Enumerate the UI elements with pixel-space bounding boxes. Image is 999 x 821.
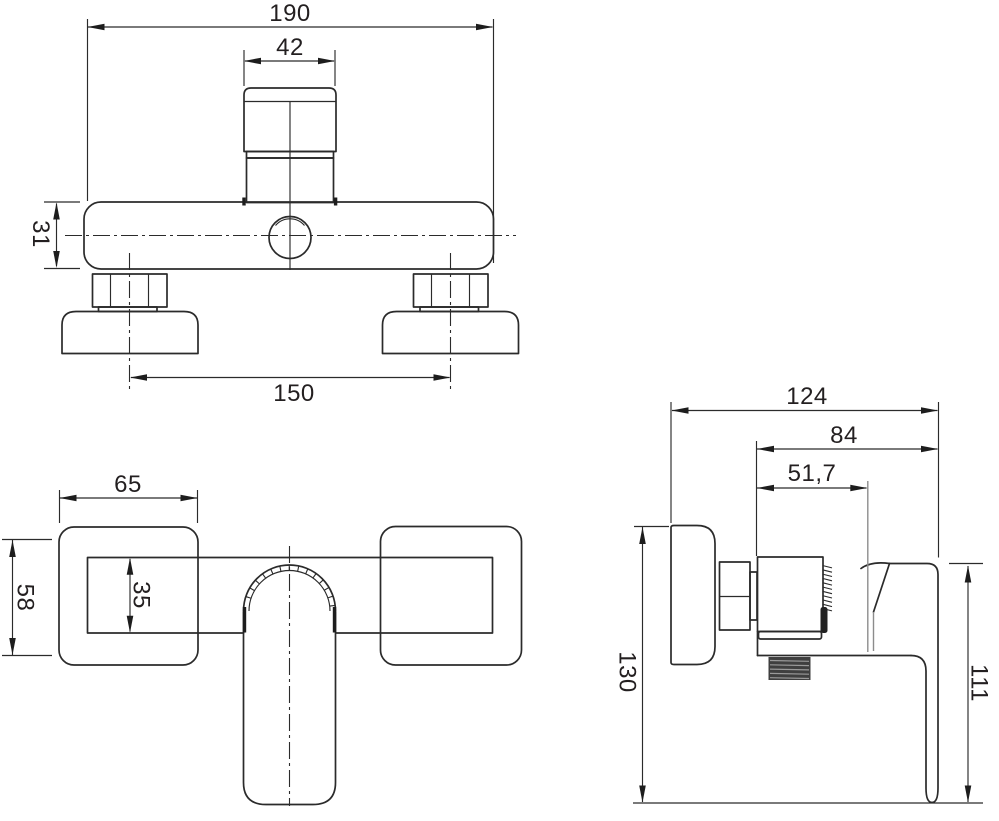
dim-side-handle-depth: 84 (830, 422, 858, 449)
dim-top-body-depth: 35 (128, 581, 155, 609)
dim-side-handle-height: 111 (966, 664, 993, 702)
dim-top-flange-depth: 58 (12, 584, 39, 612)
dim-top-flange-width: 65 (114, 471, 142, 498)
wall-plate-side (671, 526, 715, 665)
handle-junction-curve (861, 563, 890, 569)
dim-front-body-height: 31 (27, 220, 54, 248)
drawing-canvas: 190 42 31 150 65 (0, 0, 999, 821)
front-view: 190 42 31 150 (27, 0, 519, 407)
side-view: 124 84 51,7 130 111 (614, 383, 993, 803)
base-plate (759, 632, 822, 640)
valve-body-side (758, 557, 824, 632)
flange-right (381, 527, 522, 666)
lever-handle-side (890, 564, 939, 803)
dimension-arrowheads (9, 24, 971, 803)
cartridge-thread-hatch (823, 566, 833, 611)
dim-side-overall-height: 130 (614, 651, 641, 693)
nut-spacer (750, 572, 757, 620)
dim-front-connection-spacing: 150 (273, 380, 315, 407)
dim-front-overall-width: 190 (269, 0, 311, 27)
seal-bar (821, 607, 828, 633)
handle-front-slant (874, 564, 890, 613)
dim-front-cartridge-width: 42 (276, 34, 304, 61)
technical-drawing-sheet: 190 42 31 150 65 (0, 0, 999, 821)
dim-side-overall-depth: 124 (786, 383, 828, 410)
top-view: 65 58 35 (2, 471, 522, 806)
dim-side-body-depth: 51,7 (788, 460, 837, 487)
